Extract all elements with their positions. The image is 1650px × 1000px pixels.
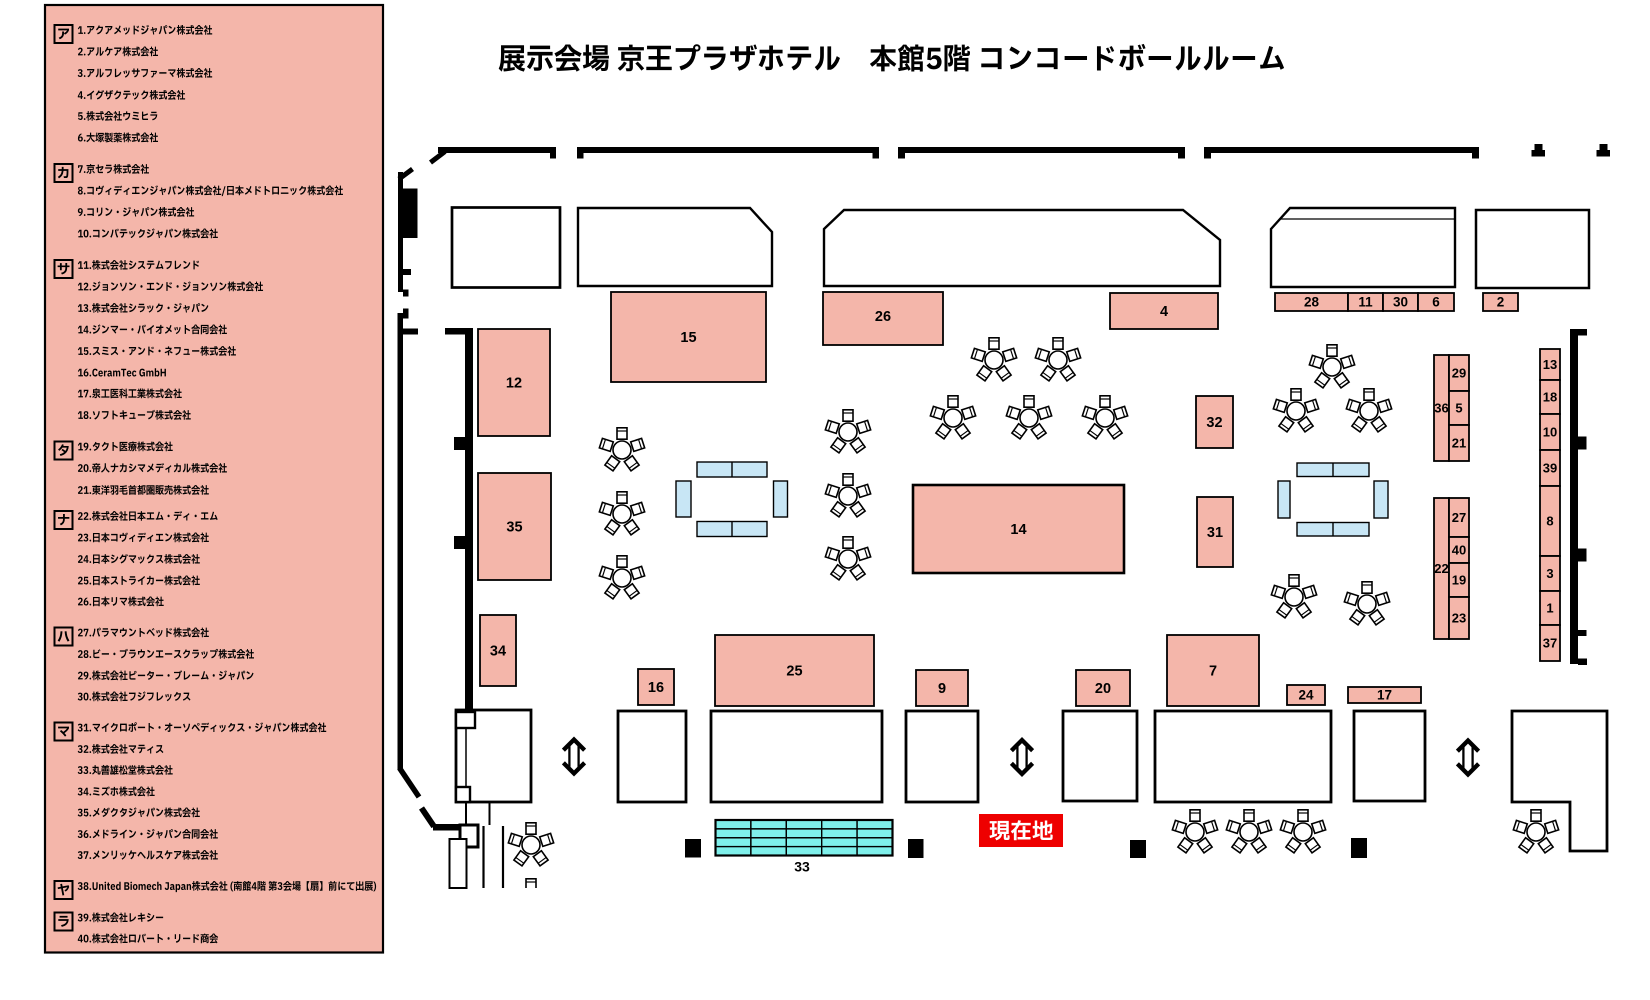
svg-text:30: 30	[1393, 295, 1408, 310]
svg-text:19: 19	[1452, 573, 1466, 588]
svg-text:16: 16	[648, 680, 664, 696]
svg-text:21: 21	[1452, 436, 1466, 451]
svg-text:32: 32	[1206, 415, 1222, 431]
svg-text:7: 7	[1209, 664, 1217, 680]
svg-text:3: 3	[1546, 566, 1553, 581]
svg-text:40: 40	[1452, 543, 1466, 558]
svg-text:26: 26	[875, 309, 891, 325]
svg-text:5: 5	[1455, 401, 1462, 416]
svg-text:25: 25	[786, 664, 802, 680]
svg-text:4: 4	[1160, 304, 1168, 320]
svg-text:29: 29	[1452, 366, 1466, 381]
svg-text:37: 37	[1543, 636, 1557, 651]
svg-text:14: 14	[1010, 522, 1026, 538]
svg-text:9: 9	[938, 681, 946, 697]
svg-text:39: 39	[1543, 461, 1557, 476]
svg-text:11: 11	[1358, 295, 1373, 310]
svg-text:18: 18	[1543, 390, 1557, 405]
svg-text:6: 6	[1432, 295, 1440, 310]
svg-text:31: 31	[1207, 525, 1223, 541]
svg-text:12: 12	[506, 376, 522, 392]
svg-text:35: 35	[506, 520, 522, 536]
svg-text:1: 1	[1546, 601, 1553, 616]
svg-text:2: 2	[1497, 295, 1505, 310]
svg-text:36: 36	[1434, 401, 1448, 416]
svg-text:20: 20	[1095, 681, 1111, 697]
svg-text:10: 10	[1543, 425, 1557, 440]
svg-text:24: 24	[1298, 688, 1314, 703]
svg-text:22: 22	[1434, 561, 1448, 576]
svg-text:8: 8	[1546, 514, 1553, 529]
svg-text:17: 17	[1377, 688, 1392, 703]
svg-text:15: 15	[680, 330, 696, 346]
svg-text:28: 28	[1304, 295, 1320, 310]
svg-text:27: 27	[1452, 510, 1466, 525]
svg-text:23: 23	[1452, 611, 1466, 626]
svg-text:33: 33	[794, 858, 810, 874]
svg-text:13: 13	[1543, 357, 1557, 372]
svg-text:34: 34	[490, 644, 506, 660]
